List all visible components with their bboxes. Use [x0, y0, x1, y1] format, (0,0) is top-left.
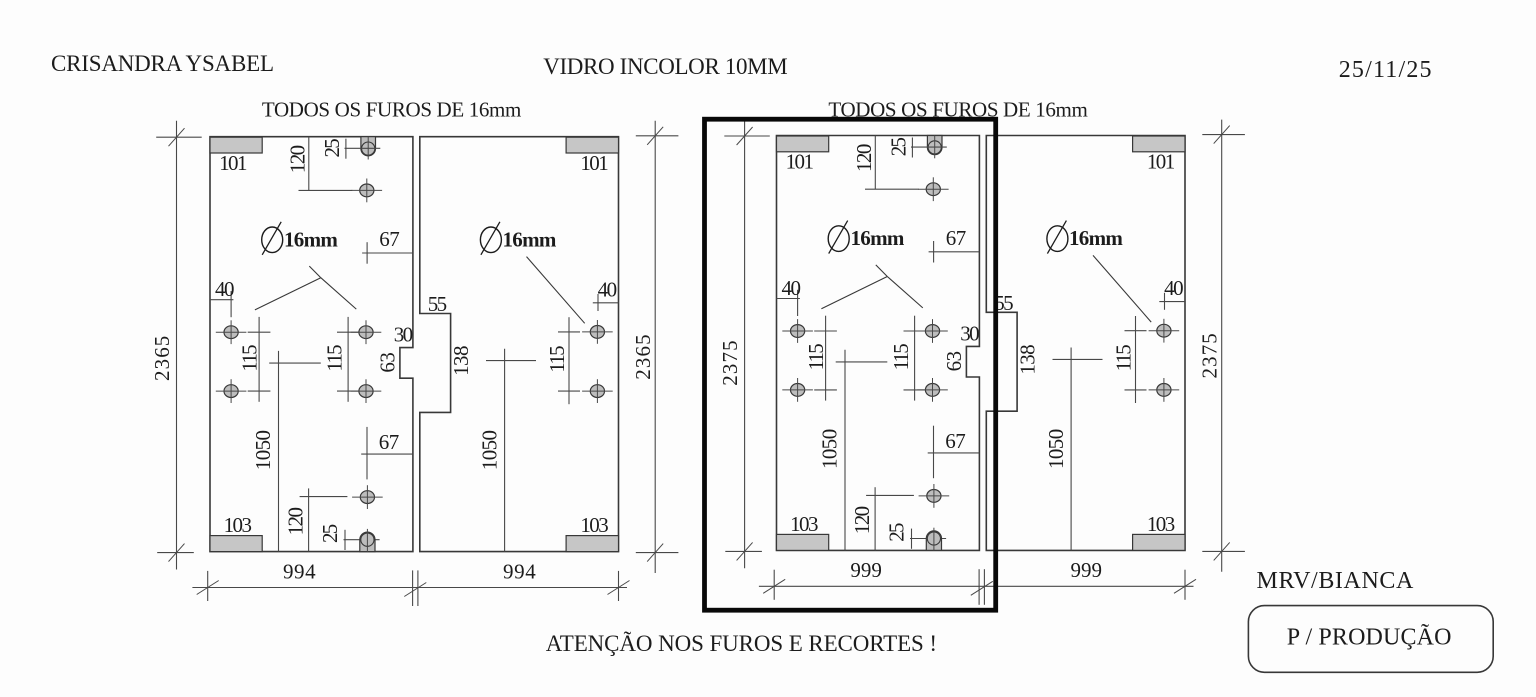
svg-text:40: 40: [1164, 276, 1183, 300]
svg-text:999: 999: [850, 558, 882, 582]
svg-text:40: 40: [215, 277, 234, 301]
svg-text:25: 25: [886, 138, 910, 157]
svg-text:25: 25: [320, 139, 344, 158]
svg-text:994: 994: [283, 559, 316, 583]
svg-text:ATENÇÃO NOS FUROS E RECORTES !: ATENÇÃO NOS FUROS E RECORTES !: [546, 631, 937, 656]
svg-text:115: 115: [545, 346, 569, 373]
svg-text:120: 120: [285, 145, 309, 173]
svg-text:120: 120: [284, 508, 308, 536]
svg-text:1050: 1050: [251, 431, 275, 471]
svg-text:16mm: 16mm: [284, 227, 338, 251]
svg-text:CRISANDRA YSABEL: CRISANDRA YSABEL: [51, 51, 274, 76]
svg-text:30: 30: [394, 323, 413, 347]
svg-text:2365: 2365: [631, 333, 655, 379]
svg-text:1050: 1050: [1044, 429, 1068, 469]
svg-text:103: 103: [224, 513, 252, 537]
svg-text:16mm: 16mm: [1069, 226, 1123, 250]
svg-text:2365: 2365: [150, 335, 174, 381]
svg-text:103: 103: [1147, 512, 1175, 536]
svg-text:115: 115: [804, 344, 828, 371]
svg-text:40: 40: [598, 277, 617, 301]
svg-text:103: 103: [580, 513, 608, 537]
svg-text:67: 67: [379, 227, 399, 251]
svg-text:138: 138: [449, 346, 473, 376]
svg-text:67: 67: [945, 429, 965, 453]
svg-text:40: 40: [782, 276, 801, 300]
svg-text:994: 994: [503, 559, 536, 583]
svg-text:63: 63: [942, 351, 966, 371]
svg-text:55: 55: [428, 292, 447, 316]
svg-text:63: 63: [375, 353, 399, 373]
svg-text:999: 999: [1070, 558, 1102, 582]
svg-text:25/11/25: 25/11/25: [1339, 57, 1433, 83]
svg-text:2375: 2375: [718, 339, 742, 385]
svg-text:120: 120: [852, 144, 876, 172]
svg-text:115: 115: [323, 345, 347, 372]
svg-text:1050: 1050: [478, 431, 502, 471]
svg-text:115: 115: [889, 344, 913, 371]
svg-text:25: 25: [885, 523, 909, 542]
svg-text:101: 101: [219, 151, 247, 175]
svg-text:TODOS OS FUROS DE 16mm: TODOS OS FUROS DE 16mm: [262, 98, 521, 122]
svg-text:67: 67: [946, 226, 966, 250]
svg-text:16mm: 16mm: [503, 227, 557, 251]
svg-text:67: 67: [379, 430, 399, 454]
svg-text:MRV/BIANCA: MRV/BIANCA: [1257, 568, 1414, 594]
svg-text:25: 25: [318, 524, 342, 543]
svg-text:101: 101: [580, 151, 608, 175]
svg-text:101: 101: [1147, 150, 1175, 174]
svg-text:103: 103: [790, 512, 818, 536]
svg-text:1050: 1050: [818, 429, 842, 469]
svg-text:115: 115: [238, 345, 262, 372]
svg-text:115: 115: [1112, 345, 1136, 372]
svg-text:120: 120: [850, 506, 874, 534]
svg-text:101: 101: [786, 150, 814, 174]
svg-text:30: 30: [960, 322, 979, 346]
svg-text:VIDRO INCOLOR 10MM: VIDRO INCOLOR 10MM: [543, 54, 787, 79]
svg-text:16mm: 16mm: [851, 226, 905, 250]
svg-text:2375: 2375: [1197, 332, 1221, 378]
svg-text:138: 138: [1016, 345, 1040, 375]
svg-text:P / PRODUÇÃO: P / PRODUÇÃO: [1287, 625, 1452, 651]
